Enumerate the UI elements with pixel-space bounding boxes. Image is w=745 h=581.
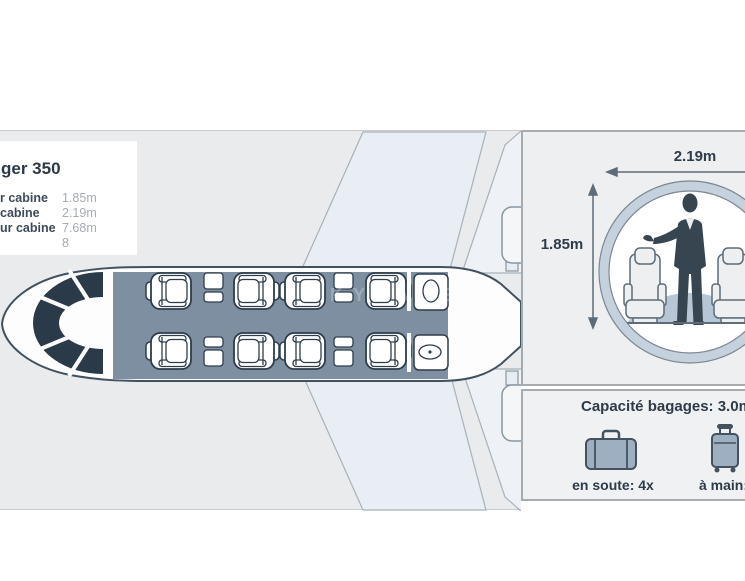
wing-bottom	[300, 369, 486, 510]
spec-value: 1.85m	[62, 191, 97, 206]
spec-label	[0, 236, 60, 251]
seat-7	[280, 333, 325, 369]
engine-nacelle-top	[502, 207, 521, 263]
suitcase-icon	[583, 427, 639, 473]
cabin-width-label: 2.19m	[655, 148, 735, 165]
spec-row-width: cabine 2.19m	[0, 206, 137, 221]
seat-1	[146, 273, 191, 309]
cabin-height-label: 1.85m	[527, 236, 597, 253]
cross-section-drawing	[523, 132, 745, 384]
baggage-title: Capacité bagages: 3.0m³	[581, 398, 745, 415]
cross-seat-left	[624, 248, 666, 323]
spec-row-length: ur cabine 7.68m	[0, 221, 137, 236]
cross-section-panel: 2.19m 1.85m	[521, 130, 745, 386]
spec-label: ur cabine	[0, 221, 60, 236]
seat-6	[234, 333, 279, 369]
wing-top	[300, 132, 486, 273]
carry-on-icon	[707, 422, 743, 474]
seat-5	[146, 333, 191, 369]
table-1	[204, 273, 223, 302]
height-dimension-arrow	[589, 185, 597, 328]
spec-label: r cabine	[0, 191, 60, 206]
spec-label: cabine	[0, 206, 60, 221]
bulkhead-bottom	[407, 333, 411, 372]
carry-on-baggage-label: à main: 4x	[699, 477, 745, 493]
spec-value: 2.19m	[62, 206, 97, 221]
engine-nacelle-bottom	[502, 385, 521, 441]
width-dimension-arrow	[607, 168, 745, 176]
spec-panel: ger 350 r cabine 1.85m cabine 2.19m ur c…	[0, 141, 137, 255]
sink-drain	[428, 350, 431, 353]
table-4	[334, 337, 353, 366]
infographic-root: SKYVALET · · · · · · · · ger 350 r cabin…	[0, 0, 745, 581]
spec-value: 7.68m	[62, 221, 97, 236]
spec-row-height: r cabine 1.85m	[0, 191, 137, 206]
spec-value: 8	[62, 236, 69, 251]
table-3	[204, 337, 223, 366]
hold-baggage-label: en soute: 4x	[563, 477, 663, 493]
spec-rows: r cabine 1.85m cabine 2.19m ur cabine 7.…	[0, 191, 137, 251]
watermark-text: SKYVALET	[308, 285, 483, 305]
watermark-subtext: · · · · · · · ·	[318, 308, 425, 315]
seat-2	[234, 273, 279, 309]
aircraft-name: ger 350	[1, 159, 137, 179]
seat-8	[366, 333, 411, 369]
spec-row-passengers: 8	[0, 236, 137, 251]
baggage-panel: Capacité bagages: 3.0m³ en soute: 4x à m…	[521, 389, 745, 501]
engine-pylon-bottom	[506, 371, 518, 385]
